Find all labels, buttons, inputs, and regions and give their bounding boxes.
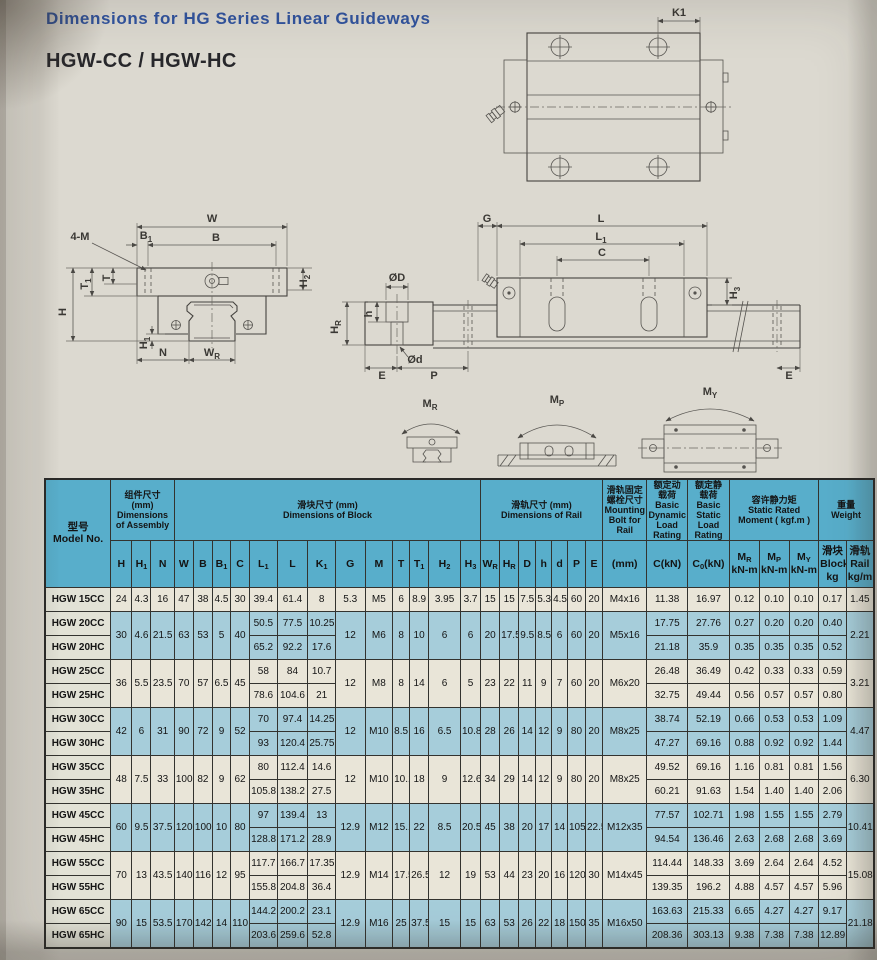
model-cell: HGW 15CC (45, 588, 111, 612)
table-cell: 50.5 (250, 612, 278, 636)
table-row: HGW 15CC244.31647384.53039.461.485.3M568… (45, 588, 874, 612)
grease-nipple-icon (482, 273, 499, 289)
table-cell: 30 (231, 588, 250, 612)
table-cell: 23 (481, 660, 500, 708)
table-cell: 19 (460, 852, 480, 900)
table-row: HGW 30CC4263190729527097.414.2512M108.51… (45, 708, 874, 732)
table-cell: 9.5 (132, 804, 151, 852)
table-cell: 70 (111, 852, 132, 900)
table-cell: 70 (174, 660, 193, 708)
model-cell: HGW 25HC (45, 684, 111, 708)
table-cell: 1.44 (819, 732, 847, 756)
table-cell: 80 (567, 756, 585, 804)
table-cell: 84 (277, 660, 308, 684)
table-cell: 100 (193, 804, 212, 852)
table-cell: 6.30 (846, 756, 874, 804)
column-header: W (174, 541, 193, 588)
table-cell: 62 (231, 756, 250, 804)
table-cell: 3.7 (460, 588, 480, 612)
table-cell: 17.5 (500, 612, 519, 660)
table-cell: 1.55 (789, 804, 819, 828)
table-cell: 78.6 (250, 684, 278, 708)
table-cell: 9 (552, 756, 568, 804)
table-cell: 0.80 (819, 684, 847, 708)
table-cell: 22 (500, 660, 519, 708)
table-cell: M10 (365, 756, 393, 804)
model-cell: HGW 65HC (45, 924, 111, 949)
model-cell: HGW 25CC (45, 660, 111, 684)
table-cell: 303.13 (687, 924, 729, 949)
column-header: 滑轨Railkg/m (846, 541, 874, 588)
table-cell: 8.5 (429, 804, 461, 852)
table-cell: 53.5 (151, 900, 174, 949)
table-cell: 40 (231, 612, 250, 660)
dimension-label: h (363, 310, 375, 317)
table-cell: 8 (393, 660, 410, 708)
table-cell: 105 (567, 804, 585, 852)
table-cell: 17.6 (308, 636, 336, 660)
model-cell: HGW 20CC (45, 612, 111, 636)
table-cell: 16 (151, 588, 174, 612)
table-cell: M12x35 (602, 804, 647, 852)
table-cell: 61.4 (277, 588, 308, 612)
table-cell: M8 (365, 660, 393, 708)
column-group-header: 额定静载荷BasicStaticLoadRating (687, 479, 729, 541)
table-cell: 4.27 (789, 900, 819, 924)
table-cell: 7.5 (132, 756, 151, 804)
column-header: G (335, 541, 365, 588)
table-cell: 105.8 (250, 780, 278, 804)
table-cell: 0.59 (819, 660, 847, 684)
table-cell: 15.1 (393, 804, 410, 852)
table-cell: 196.2 (687, 876, 729, 900)
table-cell: 20 (586, 708, 603, 756)
table-cell: 49.52 (647, 756, 687, 780)
table-cell: 0.52 (819, 636, 847, 660)
column-header: D (519, 541, 536, 588)
dimension-label: L (598, 213, 605, 225)
table-cell: 52.8 (308, 924, 336, 949)
table-cell: 20 (586, 588, 603, 612)
table-cell: 0.81 (759, 756, 789, 780)
table-cell: 0.10 (759, 588, 789, 612)
table-cell: 0.20 (789, 612, 819, 636)
column-header: MYkN-m (789, 541, 819, 588)
table-cell: 60 (111, 804, 132, 852)
table-cell: 0.20 (759, 612, 789, 636)
table-cell: 6 (132, 708, 151, 756)
dimension-label: H1 (138, 336, 152, 349)
table-cell: 1.98 (730, 804, 760, 828)
table-cell: 11 (519, 660, 536, 708)
table-cell: 12 (335, 612, 365, 660)
table-cell: 15 (500, 588, 519, 612)
table-cell: 20 (586, 756, 603, 804)
table-cell: 5.3 (536, 588, 552, 612)
table-cell: 3.69 (819, 828, 847, 852)
table-cell: 12.9 (335, 804, 365, 852)
column-group-header: 容许静力矩Static RatedMoment ( kgf.m ) (730, 479, 819, 541)
table-cell: 20 (481, 612, 500, 660)
table-cell: 22.5 (586, 804, 603, 852)
table-cell: 10 (212, 804, 230, 852)
column-header: HR (500, 541, 519, 588)
table-cell: 18 (410, 756, 429, 804)
table-cell: 60 (567, 588, 585, 612)
table-cell: 166.7 (277, 852, 308, 876)
table-cell: 0.57 (789, 684, 819, 708)
table-cell: 5 (460, 660, 480, 708)
table-cell: 92.2 (277, 636, 308, 660)
table-cell: 95 (231, 852, 250, 900)
column-group-header: 组件尺寸(mm)Dimensionsof Assembly (111, 479, 175, 541)
table-cell: M4x16 (602, 588, 647, 612)
table-cell: 8.9 (410, 588, 429, 612)
table-cell: 82 (193, 756, 212, 804)
table-cell: 44 (500, 852, 519, 900)
table-cell: 3.21 (846, 660, 874, 708)
table-cell: 31 (151, 708, 174, 756)
table-cell: 0.53 (759, 708, 789, 732)
model-cell: HGW 30HC (45, 732, 111, 756)
block-front-section-diagram (66, 223, 312, 364)
table-cell: 30 (586, 852, 603, 900)
table-cell: M14 (365, 852, 393, 900)
table-cell: 22 (410, 804, 429, 852)
table-row: HGW 65CC901553.517014214110144.2200.223.… (45, 900, 874, 924)
table-cell: 12 (335, 708, 365, 756)
table-cell: 53 (500, 900, 519, 949)
table-cell: 47 (174, 588, 193, 612)
table-cell: 1.55 (759, 804, 789, 828)
dimension-label: E (378, 370, 385, 382)
table-cell: 6 (460, 612, 480, 660)
dimension-label: WR (204, 347, 220, 361)
column-header: C(kN) (647, 541, 687, 588)
table-cell: 35 (586, 900, 603, 949)
table-cell: 171.2 (277, 828, 308, 852)
table-cell: 4.5 (212, 588, 230, 612)
table-cell: 25 (393, 900, 410, 949)
table-cell: 9 (536, 660, 552, 708)
column-header: L (277, 541, 308, 588)
table-cell: 77.5 (277, 612, 308, 636)
table-cell: 120 (174, 804, 193, 852)
table-cell: 90 (111, 900, 132, 949)
table-cell: 0.10 (789, 588, 819, 612)
model-cell: HGW 55CC (45, 852, 111, 876)
table-cell: 100 (174, 756, 193, 804)
table-cell: M6 (365, 612, 393, 660)
table-cell: 20 (586, 660, 603, 708)
table-cell: 37.5 (410, 900, 429, 949)
table-cell: 16 (552, 852, 568, 900)
dimensions-table-body: HGW 15CC244.31647384.53039.461.485.3M568… (45, 588, 874, 949)
table-cell: 110 (231, 900, 250, 949)
table-cell: 12.9 (335, 900, 365, 949)
table-cell: 48 (111, 756, 132, 804)
table-cell: 4.3 (132, 588, 151, 612)
table-cell: 39.4 (250, 588, 278, 612)
table-cell: 27.5 (308, 780, 336, 804)
table-cell: 0.33 (789, 660, 819, 684)
table-cell: 3.95 (429, 588, 461, 612)
table-cell: 0.35 (789, 636, 819, 660)
table-cell: 1.54 (730, 780, 760, 804)
column-header: MRkN-m (730, 541, 760, 588)
table-row: HGW 45CC609.537.5120100108097139.41312.9… (45, 804, 874, 828)
table-cell: 20 (586, 612, 603, 660)
table-cell: 53 (193, 612, 212, 660)
column-header: C0(kN) (687, 541, 729, 588)
table-cell: M16x50 (602, 900, 647, 949)
table-cell: 4.52 (819, 852, 847, 876)
model-cell: HGW 55HC (45, 876, 111, 900)
table-cell: 33 (151, 756, 174, 804)
table-cell: 14.25 (308, 708, 336, 732)
table-cell: 139.4 (277, 804, 308, 828)
table-cell: 150 (567, 900, 585, 949)
table-cell: 9 (212, 708, 230, 756)
table-cell: 91.63 (687, 780, 729, 804)
table-cell: 23.1 (308, 900, 336, 924)
table-cell: 12 (536, 756, 552, 804)
table-cell: 155.8 (250, 876, 278, 900)
table-cell: 120 (567, 852, 585, 900)
dimension-label: N (159, 347, 167, 359)
table-cell: 38.74 (647, 708, 687, 732)
dimension-label: W (207, 213, 218, 225)
dimension-label: MR (423, 398, 438, 412)
table-cell: 2.21 (846, 612, 874, 660)
table-cell: 4.57 (789, 876, 819, 900)
table-cell: 36.49 (687, 660, 729, 684)
model-cell: HGW 45HC (45, 828, 111, 852)
table-cell: 0.81 (789, 756, 819, 780)
column-header: T (393, 541, 410, 588)
table-cell: 29 (500, 756, 519, 804)
table-cell: 20.5 (460, 804, 480, 852)
table-cell: 45 (481, 804, 500, 852)
table-cell: 13 (308, 804, 336, 828)
table-cell: 215.33 (687, 900, 729, 924)
table-cell: 163.63 (647, 900, 687, 924)
table-cell: 117.7 (250, 852, 278, 876)
table-cell: 21.18 (846, 900, 874, 949)
table-row: HGW 20CC304.621.5635354050.577.510.2512M… (45, 612, 874, 636)
table-cell: 26 (519, 900, 536, 949)
table-cell: 104.6 (277, 684, 308, 708)
table-cell: 15 (132, 900, 151, 949)
table-cell: 21.18 (647, 636, 687, 660)
table-cell: 12.89 (819, 924, 847, 949)
table-cell: 9.17 (819, 900, 847, 924)
column-header: H (111, 541, 132, 588)
table-cell: 9.38 (730, 924, 760, 949)
table-cell: 139.35 (647, 876, 687, 900)
table-cell: 11.38 (647, 588, 687, 612)
table-cell: 26.48 (647, 660, 687, 684)
dimension-label: B1 (140, 230, 153, 244)
dimension-labels: K1WB1B4-MT1THH1NWRH2ØDhHRØdEPGLL1CH3EMRM… (57, 7, 793, 412)
table-cell: 30 (111, 612, 132, 660)
table-cell: 16 (410, 708, 429, 756)
table-cell: 204.8 (277, 876, 308, 900)
table-cell: 21 (308, 684, 336, 708)
table-cell: 1.45 (846, 588, 874, 612)
table-cell: 47.27 (647, 732, 687, 756)
table-cell: 36 (111, 660, 132, 708)
table-cell: 17.75 (647, 612, 687, 636)
table-cell: M5x16 (602, 612, 647, 660)
table-cell: 80 (567, 708, 585, 756)
table-cell: 6.5 (212, 660, 230, 708)
table-cell: 32.75 (647, 684, 687, 708)
table-cell: 15 (460, 900, 480, 949)
dimension-label: 4-M (71, 231, 90, 243)
table-cell: 12 (536, 708, 552, 756)
table-cell: 2.68 (789, 828, 819, 852)
table-cell: 26.5 (410, 852, 429, 900)
column-header: M (365, 541, 393, 588)
column-header: H3 (460, 541, 480, 588)
table-cell: 20 (536, 852, 552, 900)
table-cell: 22 (536, 900, 552, 949)
table-cell: M14x45 (602, 852, 647, 900)
column-header: WR (481, 541, 500, 588)
column-header: C (231, 541, 250, 588)
table-cell: 0.57 (759, 684, 789, 708)
table-cell: 0.40 (819, 612, 847, 636)
table-cell: 8 (393, 612, 410, 660)
table-cell: 35.9 (687, 636, 729, 660)
table-cell: 10.8 (460, 708, 480, 756)
table-cell: 77.57 (647, 804, 687, 828)
table-row: HGW 55CC701343.51401161295117.7166.717.3… (45, 852, 874, 876)
table-cell: 63 (481, 900, 500, 949)
table-cell: 23 (519, 852, 536, 900)
table-cell: 5.96 (819, 876, 847, 900)
dimension-label: ØD (389, 272, 406, 284)
column-group-header: 重量Weight (819, 479, 874, 541)
table-cell: 6.65 (730, 900, 760, 924)
dimension-label: E (785, 370, 792, 382)
table-cell: 97.4 (277, 708, 308, 732)
table-cell: 49.44 (687, 684, 729, 708)
table-cell: 21.5 (151, 612, 174, 660)
table-cell: 0.42 (730, 660, 760, 684)
table-cell: 65.2 (250, 636, 278, 660)
table-cell: 13 (132, 852, 151, 900)
table-cell: 140 (174, 852, 193, 900)
column-group-header: 滑轨尺寸 (mm)Dimensions of Rail (481, 479, 603, 541)
table-cell: 14 (410, 660, 429, 708)
table-cell: 0.35 (730, 636, 760, 660)
table-cell: 17.5 (393, 852, 410, 900)
column-header: (mm) (602, 541, 647, 588)
table-cell: 38 (193, 588, 212, 612)
table-cell: 14 (212, 900, 230, 949)
grease-nipple-icon (486, 105, 506, 123)
dimension-label: MY (703, 386, 718, 400)
table-cell: 0.88 (730, 732, 760, 756)
table-cell: 53 (481, 852, 500, 900)
table-cell: 8.5 (393, 708, 410, 756)
table-cell: 1.40 (759, 780, 789, 804)
table-cell: 72 (193, 708, 212, 756)
table-cell: 12 (429, 852, 461, 900)
dimension-label: H3 (728, 286, 742, 299)
table-cell: 12 (335, 660, 365, 708)
column-header: P (567, 541, 585, 588)
table-cell: 6 (429, 660, 461, 708)
column-header: T1 (410, 541, 429, 588)
table-cell: 1.40 (789, 780, 819, 804)
dimension-label: B (212, 232, 220, 244)
table-cell: 60 (567, 660, 585, 708)
table-cell: 52 (231, 708, 250, 756)
table-cell: 0.92 (789, 732, 819, 756)
table-cell: 15 (481, 588, 500, 612)
column-header: K1 (308, 541, 336, 588)
table-cell: 4.57 (759, 876, 789, 900)
table-cell: 1.56 (819, 756, 847, 780)
table-cell: 58 (250, 660, 278, 684)
table-cell: 4.5 (552, 588, 568, 612)
model-cell: HGW 45CC (45, 804, 111, 828)
column-group-header: 滑轨固定螺栓尺寸MountingBolt forRail (602, 479, 647, 541)
table-cell: 12 (335, 756, 365, 804)
column-header: B1 (212, 541, 230, 588)
dimension-label: MP (550, 394, 565, 408)
moment-roll-icon (402, 424, 460, 462)
table-cell: 8.5 (536, 612, 552, 660)
table-cell: 14 (519, 708, 536, 756)
table-cell: 27.76 (687, 612, 729, 636)
table-cell: 16.97 (687, 588, 729, 612)
dimension-label: T (101, 274, 113, 281)
table-cell: 203.6 (250, 924, 278, 949)
table-cell: 4.47 (846, 708, 874, 756)
table-cell: M8x25 (602, 708, 647, 756)
table-cell: 0.33 (759, 660, 789, 684)
dimension-label: Ød (407, 354, 422, 366)
column-group-header: 滑块尺寸 (mm)Dimensions of Block (174, 479, 480, 541)
table-cell: 259.6 (277, 924, 308, 949)
table-cell: 116 (193, 852, 212, 900)
table-cell: 4.27 (759, 900, 789, 924)
column-header: h (536, 541, 552, 588)
dimension-label: H2 (298, 274, 312, 287)
table-cell: 9 (429, 756, 461, 804)
table-cell: M16 (365, 900, 393, 949)
model-cell: HGW 35HC (45, 780, 111, 804)
table-cell: M12 (365, 804, 393, 852)
table-cell: 3.69 (730, 852, 760, 876)
model-cell: HGW 30CC (45, 708, 111, 732)
table-cell: 7 (552, 660, 568, 708)
table-cell: 28 (481, 708, 500, 756)
table-cell: 6 (393, 588, 410, 612)
table-cell: 14.6 (308, 756, 336, 780)
table-cell: 120.4 (277, 732, 308, 756)
table-cell: 8 (308, 588, 336, 612)
table-cell: 18 (552, 900, 568, 949)
table-cell: 90 (174, 708, 193, 756)
table-cell: 7.5 (519, 588, 536, 612)
dimension-label: L1 (595, 231, 607, 245)
table-cell: 63 (174, 612, 193, 660)
